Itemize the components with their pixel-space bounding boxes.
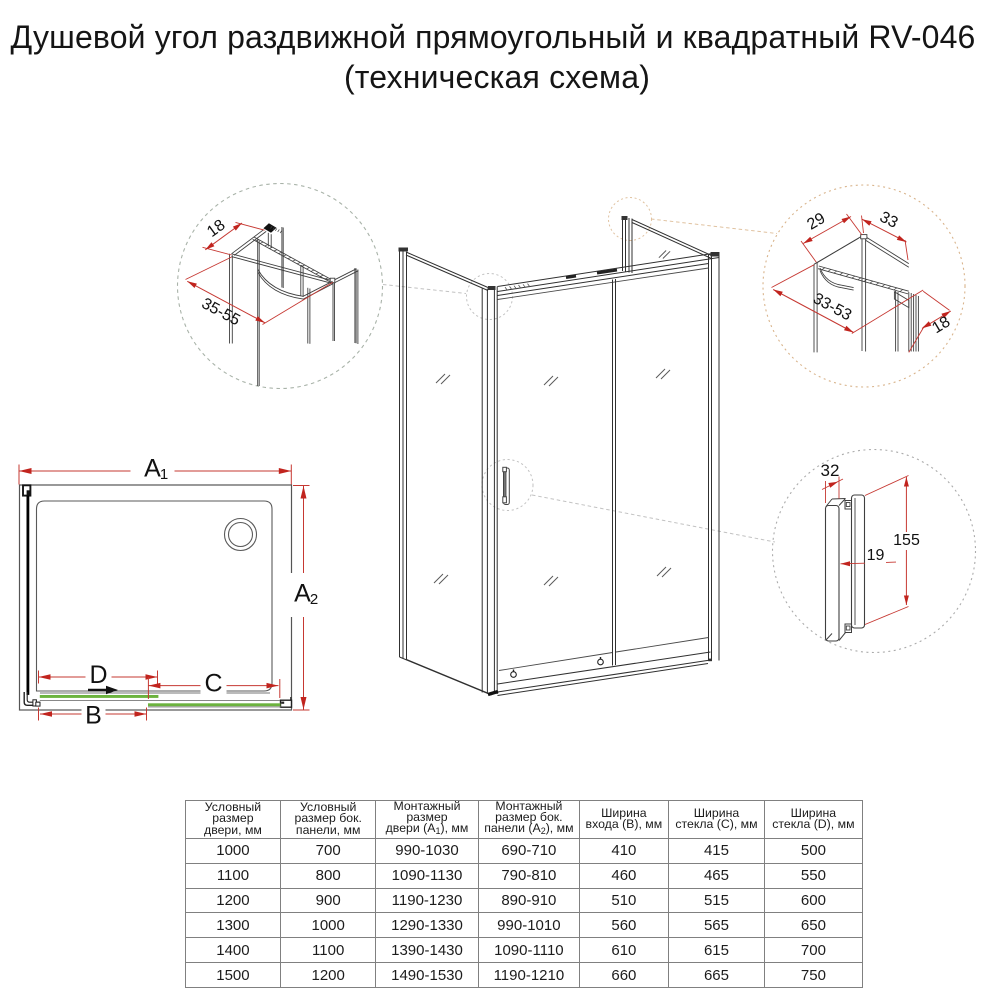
svg-text:D: D <box>89 661 107 689</box>
svg-text:155: 155 <box>893 532 920 549</box>
svg-text:19: 19 <box>867 547 885 564</box>
svg-text:A: A <box>144 455 161 483</box>
svg-text:2: 2 <box>310 591 318 608</box>
svg-text:18: 18 <box>204 217 228 241</box>
svg-text:C: C <box>204 670 222 698</box>
svg-text:A: A <box>294 580 311 608</box>
svg-text:B: B <box>85 702 102 730</box>
svg-text:18: 18 <box>929 313 953 337</box>
svg-text:29: 29 <box>804 210 828 234</box>
svg-text:32: 32 <box>821 461 840 480</box>
svg-text:35-55: 35-55 <box>199 295 243 329</box>
svg-text:1: 1 <box>160 466 168 483</box>
